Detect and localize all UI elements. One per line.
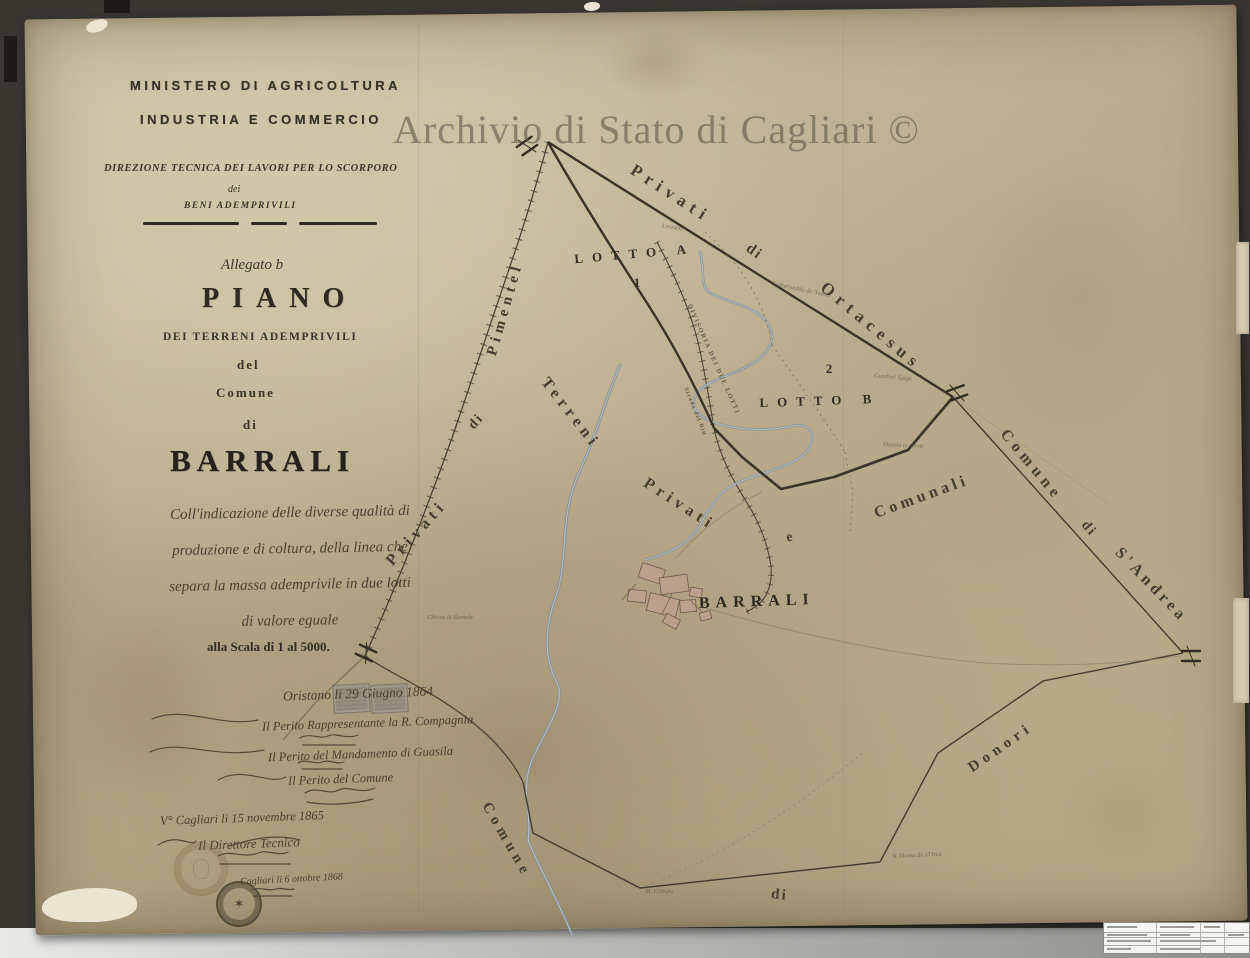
map-title-piano: PIANO: [202, 283, 357, 315]
archive-watermark: Archivio di Stato di Cagliari ©: [393, 106, 920, 153]
ministry-line-2: INDUSTRIA E COMMERCIO: [140, 112, 382, 127]
scanner-clip-mark: [4, 36, 17, 82]
scanner-background: MINISTERO DI AGRICOLTURA INDUSTRIA E COM…: [0, 0, 1250, 958]
fold-crease: [418, 24, 419, 914]
word-comune: Comune: [216, 385, 275, 401]
comune-name: BARRALI: [170, 443, 355, 479]
scanner-clip-mark: [104, 0, 130, 13]
scale-statement: alla Scala di 1 al 5000.: [207, 639, 330, 655]
paper-edge-sliver: [1233, 598, 1249, 703]
decorative-rule: [143, 222, 377, 225]
word-di: di: [243, 417, 258, 433]
allegato-label: Allegato b: [221, 257, 283, 274]
map-subtitle: DEI TERRENI ADEMPRIVILI: [163, 331, 357, 343]
paper-tear: [584, 2, 600, 11]
beni-line: BENI ADEMPRIVILI: [184, 201, 297, 211]
round-stamp-faint-icon: [174, 842, 228, 896]
dei-word: dei: [228, 184, 240, 195]
round-stamp-dark-icon: ✶: [216, 881, 262, 927]
direction-line: DIREZIONE TECNICA DEI LAVORI PER LO SCOR…: [104, 163, 397, 174]
scan-metadata-table: [1104, 923, 1249, 953]
stamp-star-icon: ✶: [234, 896, 245, 912]
paper-tear: [42, 888, 137, 922]
word-del: del: [237, 357, 260, 373]
paper-edge-sliver: [1236, 242, 1249, 334]
ministry-line-1: MINISTERO DI AGRICOLTURA: [130, 78, 401, 93]
